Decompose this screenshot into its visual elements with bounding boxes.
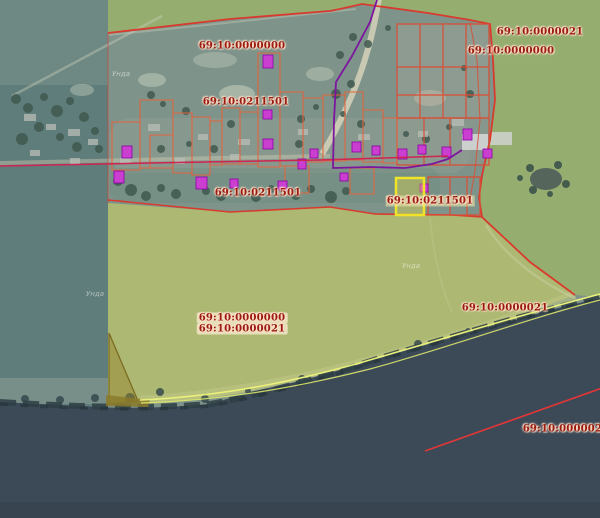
selected-parcel-label: 69:10:0211501 xyxy=(386,196,475,207)
map-viewport[interactable]: Унда Унда Унда 69:10:0000000 69:10:02115… xyxy=(0,0,600,518)
satellite-map-canvas xyxy=(0,0,600,518)
soil-patch xyxy=(193,52,237,68)
cadastral-quarter-label: 69:10:0211501 xyxy=(203,97,290,108)
cadastral-quarter-label: 69:10:0000021 xyxy=(197,324,288,335)
cadastral-quarter-label: 69:10:0000021 xyxy=(523,424,600,435)
soil-patch xyxy=(414,90,446,106)
cadastral-quarter-label: 69:10:0211501 xyxy=(215,188,302,199)
cadastral-quarter-label: 69:10:0000000 xyxy=(468,46,555,57)
soil-patch xyxy=(138,73,166,87)
soil-patch xyxy=(306,67,334,81)
water-deep-strip xyxy=(0,502,600,518)
terrain-layer xyxy=(0,0,600,518)
cadastral-quarter-label: 69:10:0000000 xyxy=(197,313,288,324)
place-name-label: Унда xyxy=(112,70,130,78)
white-farm-building xyxy=(490,132,512,145)
place-name-label: Унда xyxy=(402,262,420,270)
place-name-label: Унда xyxy=(86,290,104,298)
soil-patch xyxy=(70,84,94,96)
cadastral-quarter-label: 69:10:0000000 xyxy=(199,41,286,52)
cadastral-quarter-label: 69:10:0000021 xyxy=(497,27,584,38)
cadastral-quarter-label: 69:10:0000021 xyxy=(462,303,549,314)
